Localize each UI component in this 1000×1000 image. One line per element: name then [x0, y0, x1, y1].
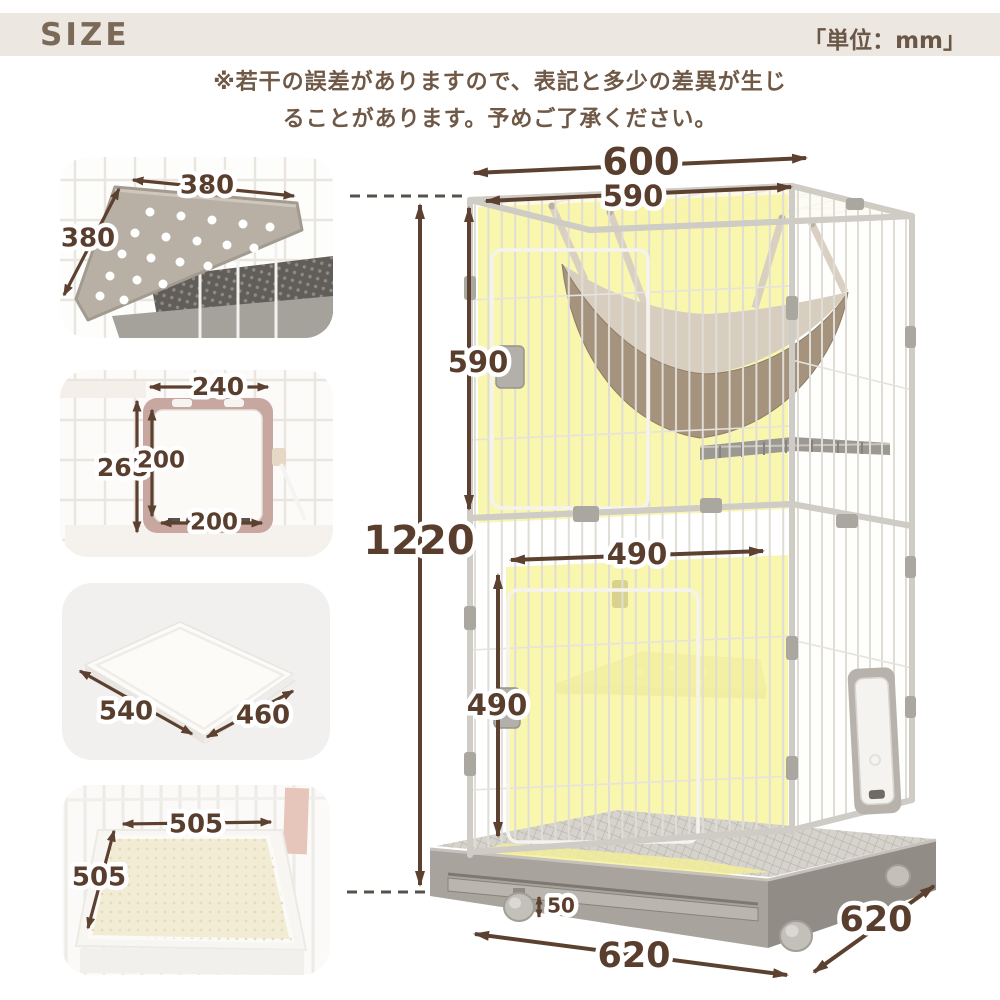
tray-photo: 540 460	[62, 583, 330, 760]
dim-cat-door-width: 240	[192, 372, 244, 401]
diagram-graphics: 380 380	[0, 0, 1000, 1000]
dim-cage-total-height: 1220	[363, 518, 474, 564]
dim-cat-door-inner-width: 200	[190, 510, 238, 536]
dim-tray-depth: 460	[236, 701, 290, 731]
dim-cage-lower-inner-width: 490	[607, 537, 668, 571]
pink-panel	[283, 788, 309, 855]
cat-door-photo: 240 265 200 200	[58, 370, 333, 557]
size-diagram-page: SIZE 「単位：mm」 ※若干の誤差がありますので、表記と多少の差異が生じ る…	[0, 0, 1000, 1000]
dim-corner-shelf-depth: 380	[61, 224, 115, 254]
dim-base-width: 620	[597, 936, 670, 976]
dim-cage-outer-width: 600	[602, 141, 679, 184]
cage-illustration	[430, 186, 936, 951]
dim-tray-width: 540	[99, 697, 153, 727]
side-cat-door	[847, 667, 902, 815]
dim-mat-depth: 505	[72, 863, 126, 893]
dim-mat-width: 505	[169, 810, 223, 840]
dim-cage-upper-height: 590	[448, 345, 509, 379]
dim-cage-lower-height: 490	[467, 688, 528, 722]
dim-cat-door-inner-height: 200	[137, 448, 185, 474]
dim-corner-shelf-width: 380	[180, 171, 234, 201]
mat-photo: 505 505	[62, 785, 330, 975]
dim-base-depth: 620	[839, 900, 912, 940]
corner-shelf-photo: 380 380	[60, 157, 333, 340]
dim-caster-height: 50	[547, 894, 575, 918]
door-latch	[272, 448, 286, 466]
dim-cage-inner-width: 590	[603, 179, 664, 213]
